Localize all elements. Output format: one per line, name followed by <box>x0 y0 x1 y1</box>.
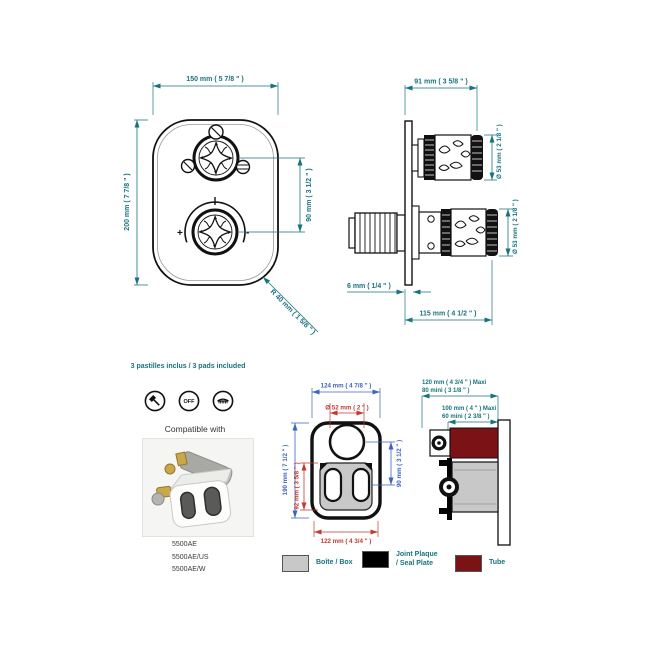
spec-sheet: + - 150 mm ( 5 7/8 " ) 200 mm ( 7 7/8 " … <box>0 0 648 648</box>
dim-plate-height: 200 mm ( 7 7/8 " ) <box>124 120 148 285</box>
svg-text:92 mm ( 3 5/8 " ): 92 mm ( 3 5/8 " ) <box>294 462 301 509</box>
svg-text:Ø 52 mm ( 2 " ): Ø 52 mm ( 2 " ) <box>325 405 369 412</box>
wall-section <box>498 420 510 545</box>
plus-mark: + <box>177 228 183 239</box>
svg-text:190 mm ( 7 1/2 " ): 190 mm ( 7 1/2 " ) <box>282 445 289 496</box>
compatible-with-label: Compatible with <box>150 424 240 434</box>
dim-corner-radius: R 40 mm ( 1 5/8 " ) <box>263 277 318 336</box>
wall-plate <box>405 121 412 285</box>
front-view-drawing: + - 150 mm ( 5 7/8 " ) 200 mm ( 7 7/8 " … <box>110 60 350 350</box>
off-icon: OFF <box>178 390 200 412</box>
svg-text:91 mm ( 3 5/8 " ): 91 mm ( 3 5/8 " ) <box>414 79 468 86</box>
tube-swatch <box>455 555 482 572</box>
dim-projection-91: 91 mm ( 3 5/8 " ) <box>405 79 477 132</box>
box-side-view-drawing: 120 mm ( 4 3/4 " ) Maxi 80 mini ( 3 1/8 … <box>408 372 558 557</box>
svg-text:6 mm ( 1/4 " ): 6 mm ( 1/4 " ) <box>347 283 391 290</box>
bottom-knob-side <box>412 206 498 259</box>
hand-shower-icon <box>144 390 166 412</box>
dim-depth-1: 120 mm ( 4 3/4 " ) Maxi 80 mini ( 3 1/8 … <box>422 380 498 428</box>
dim-plate-thickness-6: 6 mm ( 1/4 " ) <box>347 283 431 292</box>
model-number: 5500AE/US <box>172 552 209 565</box>
svg-text:90 mm ( 3 1/2 " ): 90 mm ( 3 1/2 " ) <box>306 168 313 222</box>
dim-top-knob-diameter: Ø 53 mm ( 2 1/8 " ) <box>484 124 503 180</box>
minus-mark: - <box>246 228 249 239</box>
supply-pipe <box>349 213 405 253</box>
svg-text:60 mini ( 2 3/8 " ): 60 mini ( 2 3/8 " ) <box>442 414 490 420</box>
dim-bottom-width-122: 122 mm ( 4 3/4 " ) <box>314 521 378 545</box>
svg-text:100 mm ( 4 " ) Maxi: 100 mm ( 4 " ) Maxi <box>442 406 497 412</box>
seal-plate-front <box>320 463 372 510</box>
pad-icons-row: OFF <box>144 390 234 412</box>
legend-label-tube: Tube <box>489 559 505 568</box>
svg-text:R 40 mm ( 1 5/8 " ): R 40 mm ( 1 5/8 " ) <box>269 288 317 336</box>
model-list: 5500AE 5500AE/US 5500AE/W <box>172 539 209 577</box>
svg-text:80 mini ( 3 1/8 " ): 80 mini ( 3 1/8 " ) <box>422 388 470 394</box>
svg-text:200 mm ( 7 7/8 " ): 200 mm ( 7 7/8 " ) <box>124 173 131 230</box>
box-front-view-drawing: 124 mm ( 4 7/8 " ) Ø 52 mm ( 2 " ) 190 m… <box>275 370 415 555</box>
dim-depth-2: 100 mm ( 4 " ) Maxi 60 mini ( 2 3/8 " ) <box>442 406 498 430</box>
valve-body-illustration <box>142 438 254 537</box>
svg-text:122 mm ( 4 3/4 " ): 122 mm ( 4 3/4 " ) <box>321 538 372 545</box>
dim-bottom-knob-diameter: Ø 53 mm ( 2 1/8 " ) <box>499 199 519 256</box>
svg-text:Ø 53 mm ( 2 1/8 " ): Ø 53 mm ( 2 1/8 " ) <box>512 199 519 254</box>
svg-text:150 mm ( 5 7/8 " ): 150 mm ( 5 7/8 " ) <box>186 76 243 83</box>
svg-text:90 mm ( 3 1/2 " ): 90 mm ( 3 1/2 " ) <box>396 440 403 487</box>
legend-item-seal-plate: Joint Plaque / Seal Plate <box>362 551 438 568</box>
overhead-shower-icon <box>212 390 234 412</box>
legend-item-box: Boîte / Box <box>282 555 353 572</box>
tube-section <box>430 428 498 458</box>
seal-plate-swatch <box>362 551 389 568</box>
pads-included-title: 3 pastilles inclus / 3 pads included <box>108 363 268 370</box>
legend-item-tube: Tube <box>455 555 505 572</box>
svg-text:120 mm ( 4 3/4 " ) Maxi: 120 mm ( 4 3/4 " ) Maxi <box>422 380 487 386</box>
svg-text:Ø 53 mm ( 2 1/8 " ): Ø 53 mm ( 2 1/8 " ) <box>496 124 503 179</box>
dim-total-depth-115: 115 mm ( 4 1/2 " ) <box>405 260 492 325</box>
svg-text:124 mm ( 4 7/8 " ): 124 mm ( 4 7/8 " ) <box>321 383 372 390</box>
dim-plate-width: 150 mm ( 5 7/8 " ) <box>153 76 278 115</box>
top-knob-side <box>412 135 483 180</box>
legend-label-box: Boîte / Box <box>316 559 353 568</box>
model-number: 5500AE <box>172 539 209 552</box>
svg-text:OFF: OFF <box>184 399 196 405</box>
side-view-drawing: 91 mm ( 3 5/8 " ) Ø 53 mm ( 2 1/8 " ) Ø … <box>335 55 535 340</box>
legend-label-seal-plate: Joint Plaque / Seal Plate <box>396 551 438 568</box>
box-swatch <box>282 555 309 572</box>
model-number: 5500AE/W <box>172 564 209 577</box>
svg-text:115 mm ( 4 1/2 " ): 115 mm ( 4 1/2 " ) <box>419 311 476 318</box>
